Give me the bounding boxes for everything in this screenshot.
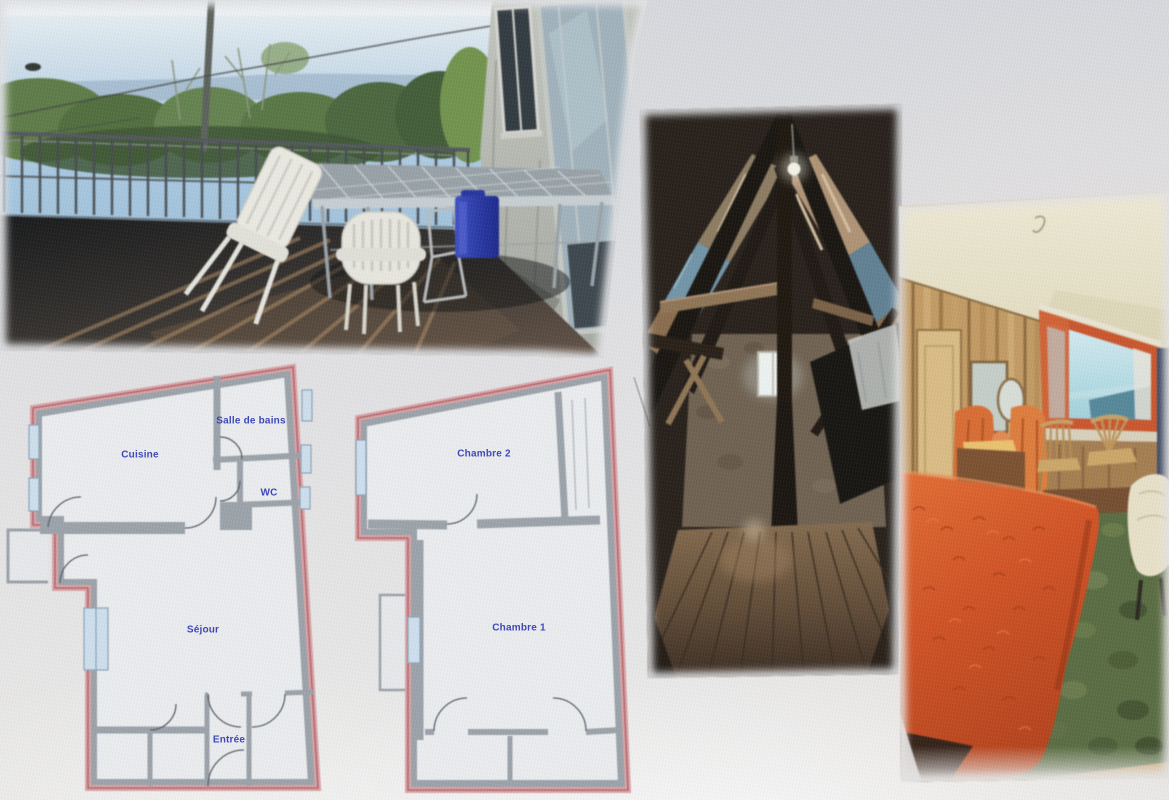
annex-balcony	[8, 530, 48, 582]
room-label-wc: WC	[260, 488, 277, 499]
room-label-chambre-2: Chambre 2	[457, 449, 511, 460]
room-label-entree: Entrée	[213, 735, 245, 746]
sheer-curtain	[1133, 348, 1151, 420]
annex-balcony	[380, 595, 408, 690]
bedroom-photo	[893, 190, 1169, 786]
attic-photo	[634, 102, 908, 682]
room-label-chambre-1: Chambre 1	[492, 623, 546, 634]
ground-floor-plan: Cuisine Salle de bains WC Séjour Entrée	[0, 360, 340, 800]
room-label-cuisine: Cuisine	[121, 450, 159, 461]
room-label-sejour: Séjour	[187, 625, 219, 636]
wooden-floor	[638, 519, 902, 677]
blue-jerrycan	[455, 190, 499, 258]
photo-collage: Cuisine Salle de bains WC Séjour Entrée	[0, 0, 1169, 800]
plan-walls	[363, 376, 622, 784]
room-label-salle-de-bains: Salle de bains	[216, 416, 286, 427]
first-floor-plan: Chambre 2 Chambre 1	[340, 360, 652, 800]
terrace-photo	[0, 0, 656, 372]
bird-silhouette	[25, 63, 41, 71]
